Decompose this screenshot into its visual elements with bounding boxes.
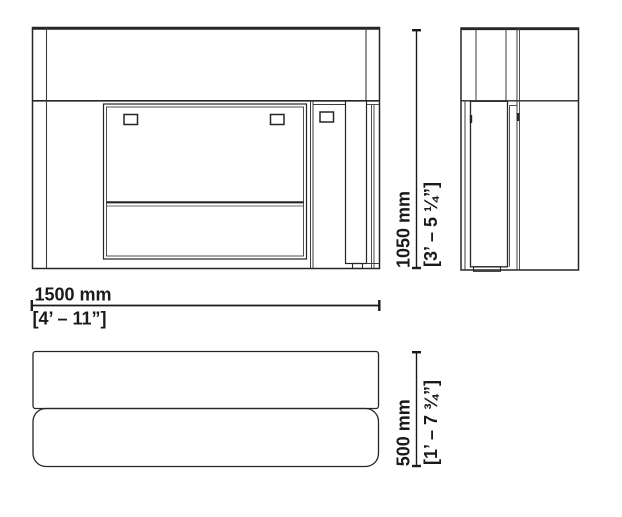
top-front-rounded-section (33, 409, 379, 467)
side-door-panel (471, 101, 508, 266)
spec-sheet-drawing: 1500 mm [4’ – 11”] 1050 mm [3’ – 5 ¼”] 5… (0, 0, 622, 517)
side-view (461, 28, 579, 271)
front-door-panel-outer (104, 104, 307, 259)
width-dimension-imperial-label: [4’ – 11”] (33, 309, 107, 329)
side-handle-mark-1 (470, 115, 472, 123)
height-dimension-metric-label: 1050 mm (394, 191, 414, 268)
side-handle-mark-2 (517, 113, 519, 121)
technical-drawing-svg: 1500 mm [4’ – 11”] 1050 mm [3’ – 5 ¼”] 5… (0, 0, 622, 517)
front-view (33, 28, 380, 269)
top-view (33, 352, 379, 467)
front-door-panel-inner (107, 107, 304, 256)
width-dimension-metric-label: 1500 mm (35, 285, 112, 305)
depth-dimension-imperial-label: [1’ – 7 ¾”] (421, 380, 441, 465)
front-vent-column (320, 112, 334, 122)
front-vent-left (124, 115, 138, 125)
height-dimension: 1050 mm [3’ – 5 ¼”] (394, 30, 442, 268)
top-back-section (33, 352, 379, 409)
width-dimension: 1500 mm [4’ – 11”] (32, 285, 380, 329)
front-vent-right (271, 115, 285, 125)
depth-dimension: 500 mm [1’ – 7 ¾”] (394, 352, 442, 466)
depth-dimension-metric-label: 500 mm (394, 399, 414, 466)
front-outer-body (33, 28, 380, 269)
height-dimension-imperial-label: [3’ – 5 ¼”] (421, 182, 441, 267)
front-side-bar (346, 101, 367, 264)
